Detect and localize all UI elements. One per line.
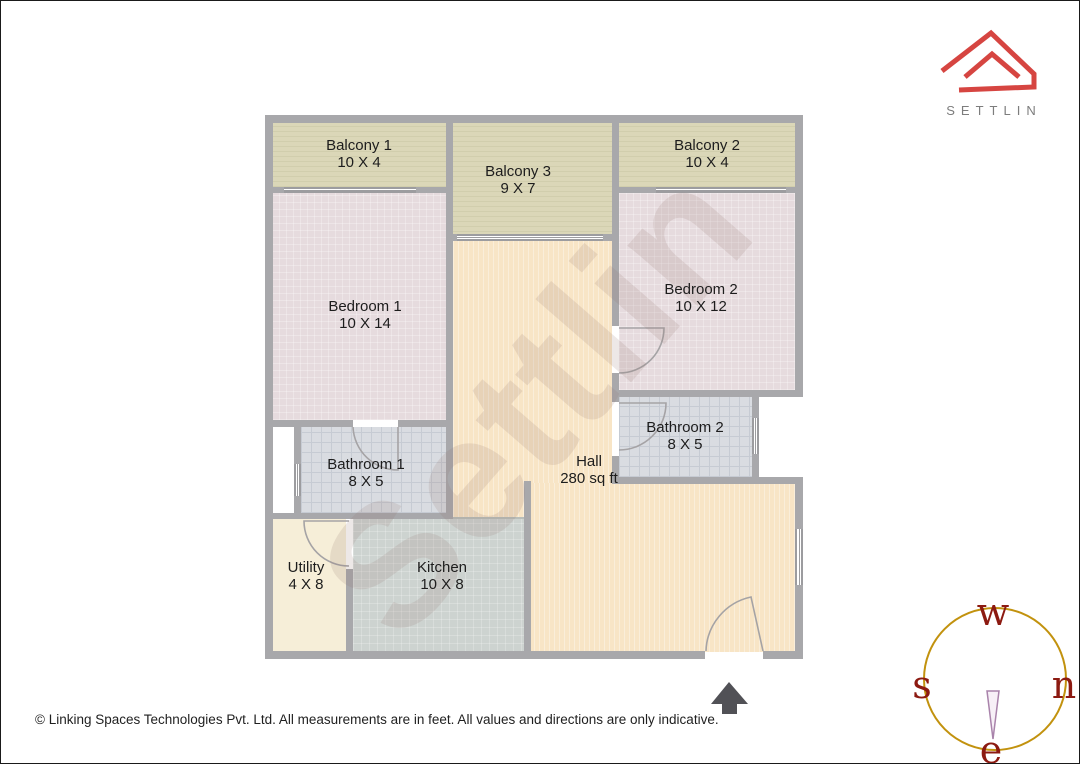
compass-east: e bbox=[980, 728, 1003, 764]
settlin-roof-logo-icon bbox=[936, 26, 1046, 96]
compass-south: s bbox=[913, 663, 932, 707]
floor-plan-page: Settlin Balcony 1 10 X 4 Balcony 3 9 X 7… bbox=[0, 0, 1080, 764]
compass-north: n bbox=[1052, 663, 1076, 707]
brand-block: SETTLIN bbox=[931, 26, 1051, 118]
entrance-arrow-icon bbox=[711, 682, 748, 714]
brand-name: SETTLIN bbox=[931, 103, 1051, 118]
copyright-text: © Linking Spaces Technologies Pvt. Ltd. … bbox=[35, 712, 719, 727]
compass-rose: w s n e bbox=[913, 589, 1080, 764]
compass-west: w bbox=[977, 590, 1010, 634]
